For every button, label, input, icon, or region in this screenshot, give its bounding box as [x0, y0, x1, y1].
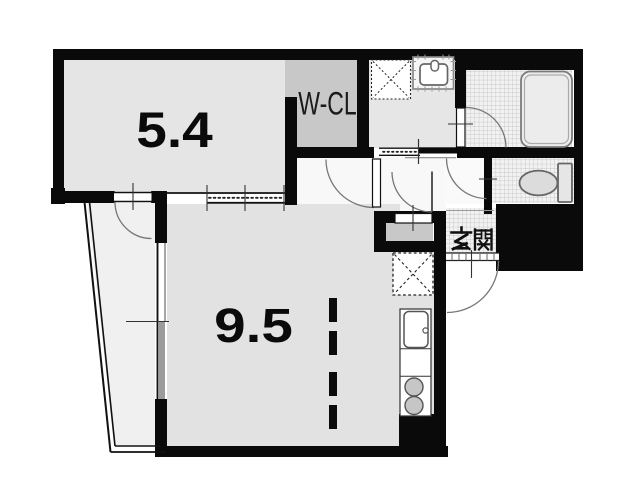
svg-text:W-CL: W-CL [298, 86, 356, 122]
svg-text:5.4: 5.4 [136, 102, 212, 158]
svg-text:9.5: 9.5 [214, 299, 293, 353]
